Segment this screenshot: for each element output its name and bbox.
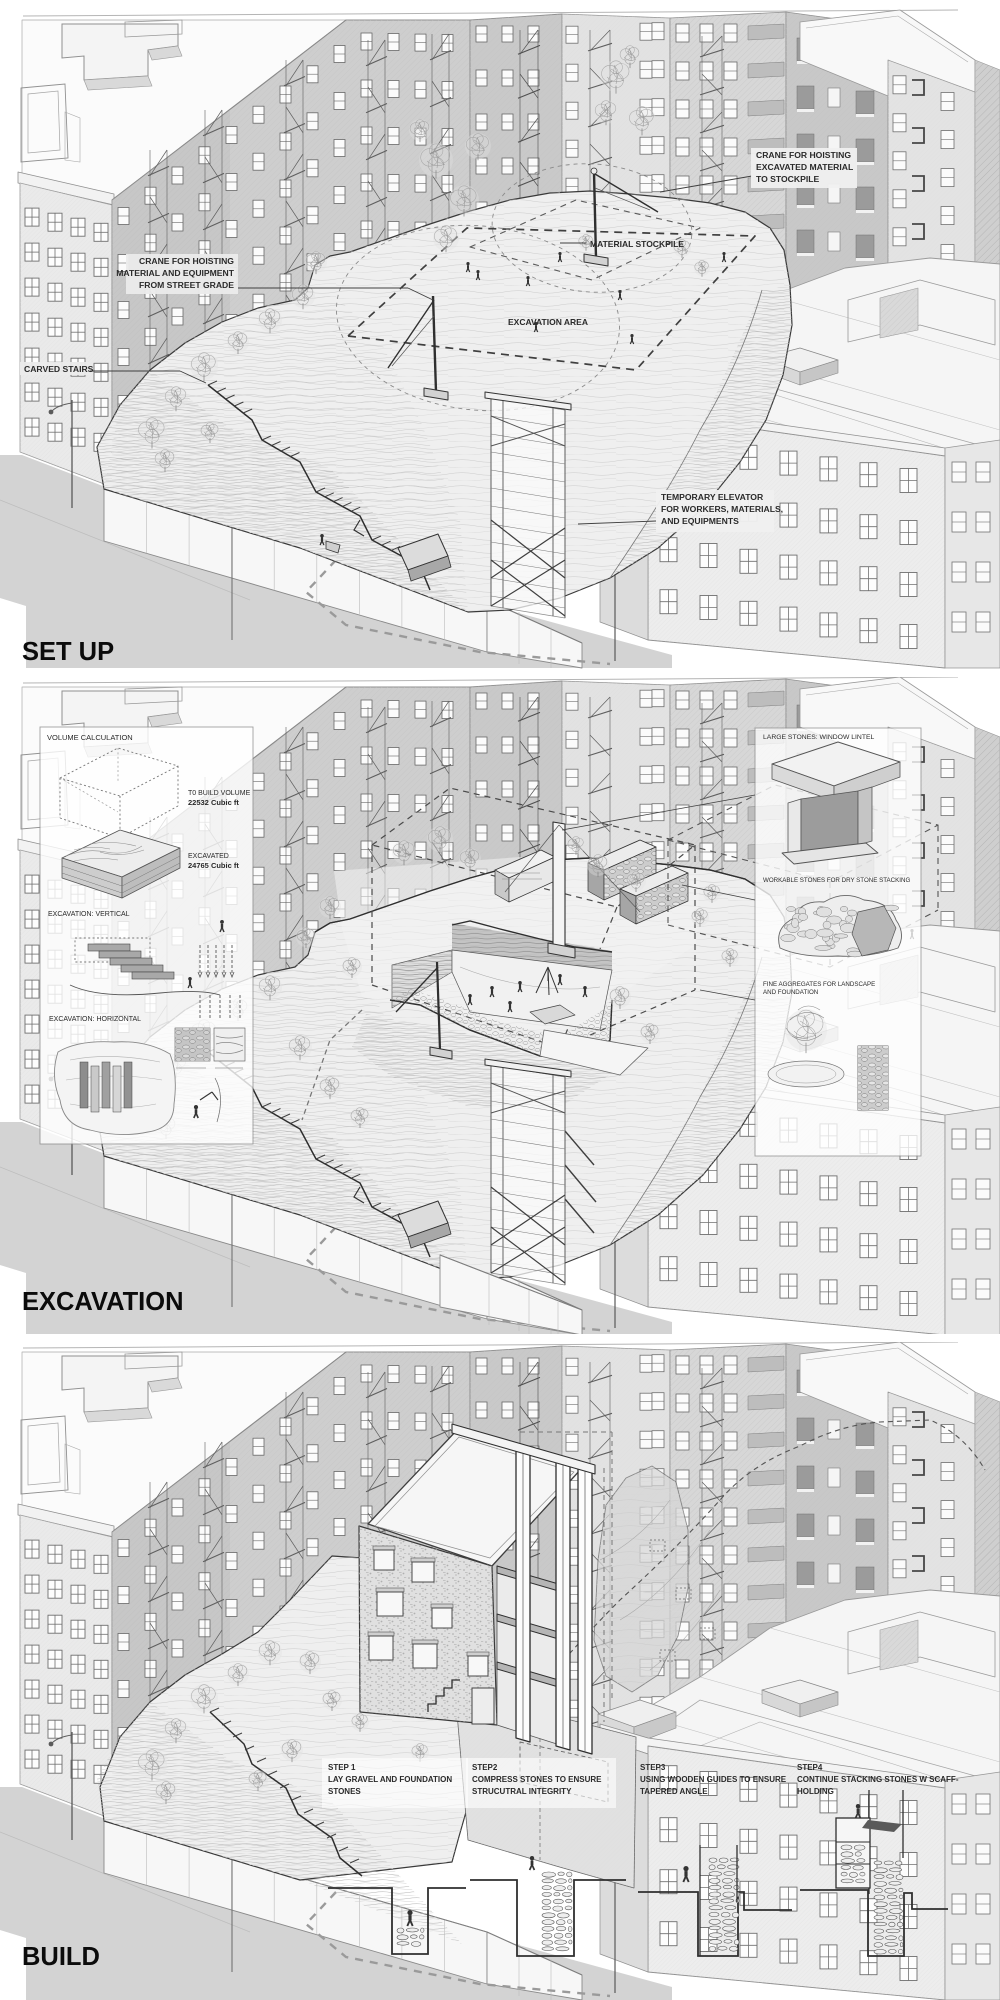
svg-text:T0 BUILD VOLUME: T0 BUILD VOLUME <box>188 790 251 797</box>
svg-text:EXCAVATION: VERTICAL: EXCAVATION: VERTICAL <box>48 911 130 918</box>
svg-text:MATERIAL STOCKPILE: MATERIAL STOCKPILE <box>590 239 684 249</box>
svg-text:BUILD: BUILD <box>22 1943 100 1971</box>
svg-text:LAY GRAVEL AND FOUNDATION: LAY GRAVEL AND FOUNDATION <box>328 1775 452 1784</box>
svg-text:STEP4: STEP4 <box>797 1763 823 1772</box>
svg-text:STEP2: STEP2 <box>472 1763 498 1772</box>
svg-text:STEP3: STEP3 <box>640 1763 666 1772</box>
svg-text:FINE AGGREGATES FOR LANDSCAPE: FINE AGGREGATES FOR LANDSCAPE <box>763 981 875 988</box>
svg-text:EXCAVATED MATERIAL: EXCAVATED MATERIAL <box>756 162 853 172</box>
svg-text:FOR WORKERS, MATERIALS,: FOR WORKERS, MATERIALS, <box>661 504 783 514</box>
svg-text:EXCAVATED: EXCAVATED <box>188 853 229 860</box>
svg-text:VOLUME CALCULATION: VOLUME CALCULATION <box>47 733 133 742</box>
svg-text:AND EQUIPMENTS: AND EQUIPMENTS <box>661 516 739 526</box>
svg-text:TAPERED ANGLE: TAPERED ANGLE <box>640 1787 708 1796</box>
svg-text:EXCAVATION: HORIZONTAL: EXCAVATION: HORIZONTAL <box>49 1016 141 1023</box>
svg-text:STRUCUTRAL INTEGRITY: STRUCUTRAL INTEGRITY <box>472 1787 572 1796</box>
svg-text:EXCAVATION: EXCAVATION <box>22 1288 184 1316</box>
svg-text:TEMPORARY ELEVATOR: TEMPORARY ELEVATOR <box>661 492 764 502</box>
svg-text:USING WOODEN GUIDES TO ENSURE: USING WOODEN GUIDES TO ENSURE <box>640 1775 787 1784</box>
svg-text:WORKABLE STONES FOR DRY STONE: WORKABLE STONES FOR DRY STONE STACKING <box>763 877 910 884</box>
svg-text:EXCAVATION AREA: EXCAVATION AREA <box>508 317 588 327</box>
svg-text:STEP 1: STEP 1 <box>328 1763 356 1772</box>
svg-text:LARGE STONES: WINDOW LINTEL: LARGE STONES: WINDOW LINTEL <box>763 734 875 741</box>
svg-text:COMPRESS STONES TO ENSURE: COMPRESS STONES TO ENSURE <box>472 1775 602 1784</box>
svg-text:CONTINUE STACKING STONES W SCA: CONTINUE STACKING STONES W SCAFF- <box>797 1775 959 1784</box>
svg-text:SET UP: SET UP <box>22 638 114 666</box>
svg-text:FROM STREET GRADE: FROM STREET GRADE <box>139 280 234 290</box>
svg-text:CRANE FOR HOISTING: CRANE FOR HOISTING <box>139 256 234 266</box>
svg-text:22532 Cubic ft: 22532 Cubic ft <box>188 798 239 807</box>
svg-text:24765 Cubic ft: 24765 Cubic ft <box>188 861 239 870</box>
svg-text:TO STOCKPILE: TO STOCKPILE <box>756 174 819 184</box>
svg-text:CRANE FOR HOISTING: CRANE FOR HOISTING <box>756 150 851 160</box>
svg-text:CARVED STAIRS: CARVED STAIRS <box>24 364 94 374</box>
svg-text:HOLDING: HOLDING <box>797 1787 834 1796</box>
svg-text:AND FOUNDATION: AND FOUNDATION <box>763 989 818 996</box>
svg-text:STONES: STONES <box>328 1787 361 1796</box>
svg-text:MATERIAL AND EQUIPMENT: MATERIAL AND EQUIPMENT <box>116 268 235 278</box>
